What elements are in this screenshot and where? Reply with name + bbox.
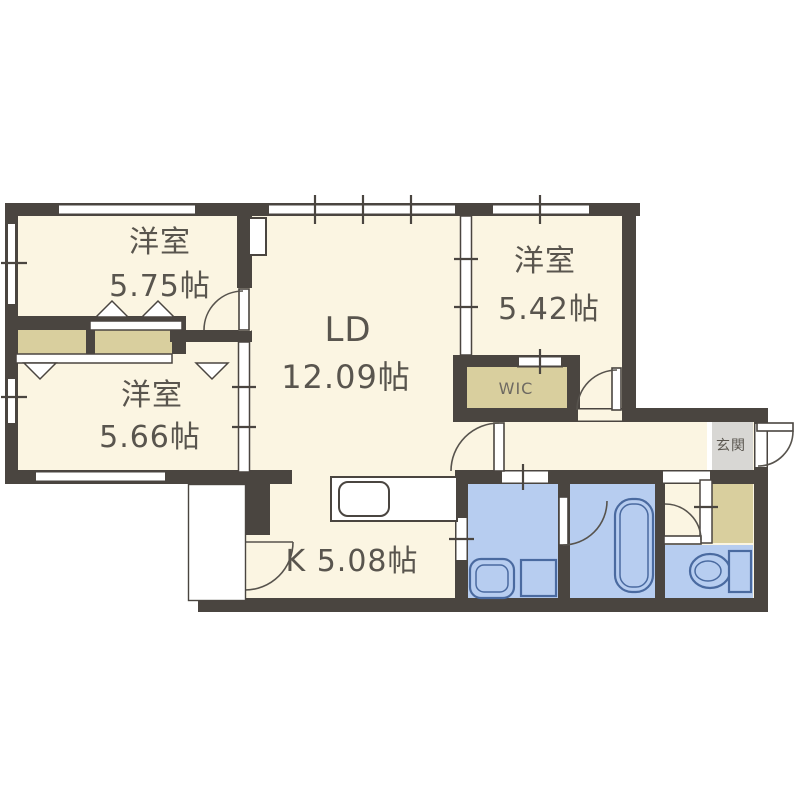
outside-area — [0, 483, 245, 800]
wall-corridor-bottom — [455, 470, 768, 484]
wall-bottom-outer — [198, 598, 768, 612]
closet-cell-left — [16, 330, 86, 354]
wall-kitchen-left — [245, 473, 270, 535]
entrance-label: 玄関 — [716, 439, 746, 453]
bedroom2-size: 5.66帖 — [99, 423, 201, 453]
bathroom — [570, 484, 655, 598]
living-name: LD — [324, 313, 371, 347]
wall-bedroom1-right — [237, 216, 252, 288]
wall-bedroom3-right — [622, 203, 636, 422]
bedroom1-name: 洋室 — [129, 228, 191, 258]
washroom — [468, 484, 558, 598]
wall-kitchen-washroom — [455, 470, 468, 610]
bedroom2-name: 洋室 — [121, 381, 183, 411]
bedroom3-name: 洋室 — [514, 247, 576, 277]
floor-plan: 洋室 5.75帖 洋室 5.66帖 LD 12.09帖 洋室 5.42帖 K 5… — [0, 0, 800, 800]
wall-closet-divider — [86, 330, 95, 354]
wall-right-outer — [754, 408, 768, 612]
bedroom1-size: 5.75帖 — [109, 272, 211, 302]
wall-left — [5, 203, 18, 483]
wall-closet-top — [5, 316, 186, 330]
living-size: 12.09帖 — [281, 361, 411, 393]
wall-closet-right — [172, 330, 186, 354]
shoe-closet — [712, 480, 753, 543]
wic-label: WIC — [499, 381, 534, 397]
bedroom3-size: 5.42帖 — [498, 295, 600, 325]
wall-corridor-top — [453, 408, 768, 422]
closet-cell-right — [95, 330, 172, 354]
wall-bath-toilet — [655, 484, 665, 598]
toilet-room — [665, 545, 753, 598]
entrance-step — [707, 422, 712, 470]
kitchen-label: K 5.08帖 — [285, 547, 418, 577]
wall-top — [5, 203, 640, 216]
wall-washroom-bath — [558, 484, 570, 598]
wall-wic-top — [453, 355, 580, 367]
